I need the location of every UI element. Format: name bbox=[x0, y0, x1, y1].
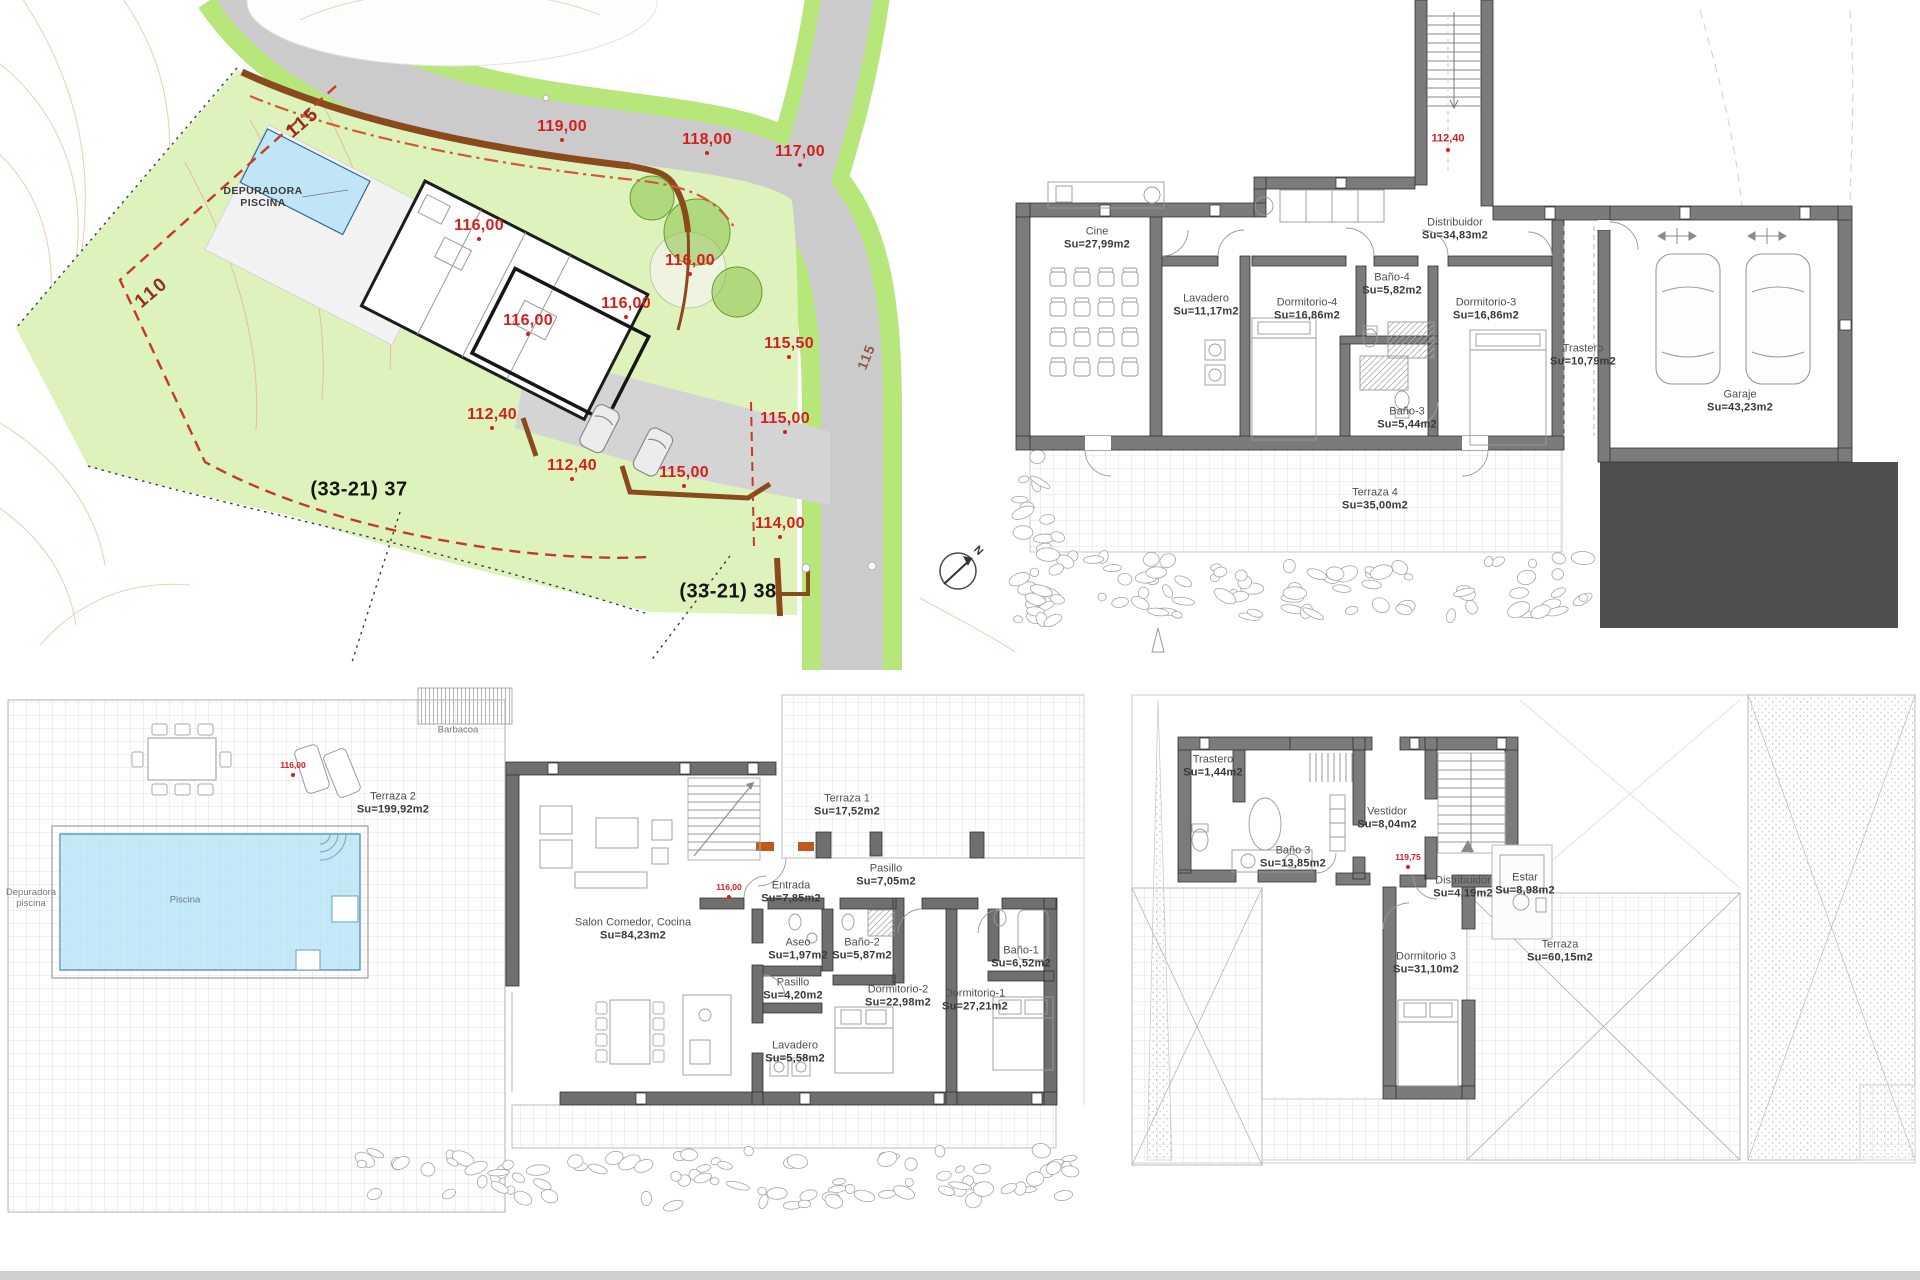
elevation-dot bbox=[705, 151, 709, 155]
label-aseo: AseoSu=1,97m2 bbox=[768, 936, 828, 961]
label-pasillo-2: PasilloSu=4,20m2 bbox=[763, 976, 823, 1001]
label-trastero-basement: TrasteroSu=10,79m2 bbox=[1550, 342, 1616, 367]
label-garaje: GarajeSu=43,23m2 bbox=[1707, 388, 1773, 413]
label-salon: Salon Comedor, CocinaSu=84,23m2 bbox=[575, 916, 691, 941]
label-vestidor: VestidorSu=8,04m2 bbox=[1357, 805, 1417, 830]
elevation-116-b: 116,00 bbox=[665, 252, 715, 270]
north-label: N bbox=[971, 544, 986, 559]
label-lavadero-main: LavaderoSu=5,58m2 bbox=[765, 1039, 825, 1064]
contour-label-115: 115 bbox=[282, 103, 324, 143]
elevation-dot bbox=[490, 426, 494, 430]
elevation-112-40-b: 112,40 bbox=[547, 457, 597, 475]
label-bano-2: Baño-2Su=5,87m2 bbox=[832, 936, 892, 961]
label-cine: CineSu=27,99m2 bbox=[1064, 225, 1130, 250]
label-dormitorio-3-basement: Dormitorio-3Su=16,86m2 bbox=[1453, 296, 1519, 321]
elevation-dot bbox=[798, 163, 802, 167]
architectural-plan-sheet: 119,00118,00117,00116,00116,00116,00116,… bbox=[0, 0, 1920, 1280]
label-distribuidor-top: DistribuidorSu=4,19m2 bbox=[1433, 874, 1493, 899]
label-terraza-4: Terraza 4Su=35,00m2 bbox=[1342, 486, 1408, 511]
elevation-dot bbox=[560, 138, 564, 142]
elevation-118: 118,00 bbox=[682, 131, 732, 149]
label-piscina: Piscina bbox=[170, 896, 201, 907]
elevation-116-house: 116,00 bbox=[716, 883, 742, 893]
elevation-116-terraza: 116,00 bbox=[280, 761, 306, 771]
elevation-dot bbox=[1446, 148, 1450, 152]
elevation-115-50: 115,50 bbox=[764, 335, 814, 353]
elevation-dot bbox=[526, 332, 530, 336]
label-entrada: EntradaSu=7,85m2 bbox=[761, 879, 821, 904]
elevation-112-40-basement: 112,40 bbox=[1431, 133, 1464, 146]
elevation-dot bbox=[477, 237, 481, 241]
label-dormitorio-1: Dormitorio-1Su=27,21m2 bbox=[942, 987, 1008, 1012]
label-bano-1: Baño-1Su=6,52m2 bbox=[991, 944, 1051, 969]
elevation-117: 117,00 bbox=[775, 143, 825, 161]
plot-label-37: (33-21) 37 bbox=[310, 479, 407, 502]
label-lavadero-basement: LavaderoSu=11,17m2 bbox=[1173, 292, 1238, 317]
elevation-dot bbox=[787, 355, 791, 359]
label-distribuidor-basement: DistribuidorSu=34,83m2 bbox=[1422, 216, 1488, 241]
label-bano-3-top: Baño 3Su=13,85m2 bbox=[1260, 844, 1326, 869]
label-bano-3-basement: Baño-3Su=5,44m2 bbox=[1377, 405, 1437, 430]
road-label-115: 115 bbox=[854, 342, 879, 372]
label-estar: EstarSu=8,98m2 bbox=[1495, 871, 1555, 896]
elevation-115-a: 115,00 bbox=[760, 410, 810, 428]
elevation-119-75: 119,75 bbox=[1395, 853, 1421, 863]
elevation-dot bbox=[778, 535, 782, 539]
elevation-dot bbox=[783, 430, 787, 434]
elevation-114: 114,00 bbox=[755, 515, 805, 533]
elevation-dot bbox=[688, 272, 692, 276]
label-depuradora-piscina: DEPURADORA PISCINA bbox=[223, 185, 302, 209]
plot-label-38: (33-21) 38 bbox=[679, 581, 776, 604]
elevation-116-a: 116,00 bbox=[454, 217, 504, 235]
label-dormitorio-4: Dormitorio-4Su=16,86m2 bbox=[1274, 296, 1340, 321]
label-bano-4: Baño-4Su=5,82m2 bbox=[1362, 271, 1422, 296]
label-pasillo-1: PasilloSu=7,05m2 bbox=[856, 862, 916, 887]
elevation-dot bbox=[682, 484, 686, 488]
elevation-dot bbox=[1406, 865, 1410, 869]
label-dormitorio-3-top: Dormitorio 3Su=31,10m2 bbox=[1393, 950, 1459, 975]
label-barbacoa: Barbacoa bbox=[438, 726, 479, 737]
elevation-112-40-a: 112,40 bbox=[467, 406, 517, 424]
label-dormitorio-2: Dormitorio-2Su=22,98m2 bbox=[865, 983, 931, 1008]
label-trastero-top: TrasteroSu=1,44m2 bbox=[1183, 753, 1243, 778]
elevation-dot bbox=[291, 773, 295, 777]
elevation-119: 119,00 bbox=[537, 118, 587, 136]
label-terraza-2: Terraza 2Su=199,92m2 bbox=[357, 790, 429, 815]
elevation-dot bbox=[727, 895, 731, 899]
label-layer: 119,00118,00117,00116,00116,00116,00116,… bbox=[0, 0, 1920, 1280]
elevation-116-c: 116,00 bbox=[601, 295, 651, 313]
elevation-dot bbox=[570, 477, 574, 481]
label-terraza-1: Terraza 1Su=17,52m2 bbox=[814, 792, 880, 817]
label-terraza-top: TerrazaSu=60,15m2 bbox=[1527, 938, 1593, 963]
elevation-116-d: 116,00 bbox=[503, 312, 553, 330]
contour-label-110: 110 bbox=[131, 273, 173, 313]
elevation-dot bbox=[624, 315, 628, 319]
label-depuradora: Depuradora piscina bbox=[6, 888, 56, 910]
elevation-115-b: 115,00 bbox=[659, 464, 709, 482]
